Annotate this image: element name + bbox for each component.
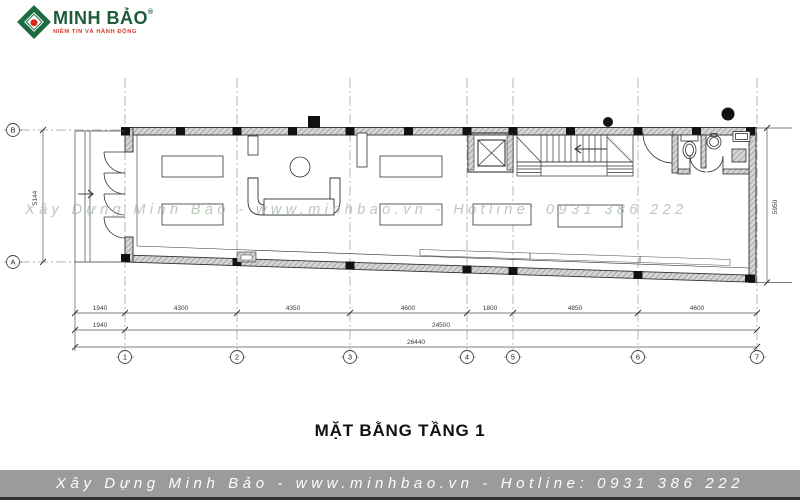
svg-text:7: 7 (755, 353, 759, 362)
svg-text:B: B (10, 126, 15, 135)
floor-plan-drawing: 1940 4300 4350 4600 1800 4850 4600 1940 … (0, 0, 800, 470)
svg-text:4: 4 (465, 353, 469, 362)
svg-text:3: 3 (348, 353, 352, 362)
dim-label-left: 5144 (32, 190, 39, 205)
utility-pole-icon (603, 117, 613, 127)
entrance-ramp (75, 131, 125, 262)
dim-label: 4600 (690, 305, 705, 312)
signage-block (308, 116, 320, 128)
svg-text:5: 5 (511, 353, 515, 362)
dim-label: 1940 (93, 305, 108, 312)
sofa-set (248, 178, 340, 215)
dim-label: 1940 (93, 322, 108, 329)
footer-bar: Xây Dựng Minh Bảo - www.minhbao.vn - Hot… (0, 470, 800, 497)
dim-label: 24500 (432, 322, 450, 329)
staircase (517, 135, 633, 176)
page: MINH BẢO® NIỀM TIN VÀ HÀNH ĐỘNG (0, 0, 800, 500)
dim-label: 26440 (407, 339, 425, 346)
dim-label: 4350 (286, 305, 301, 312)
sheet-title: MẶT BẰNG TẦNG 1 (0, 421, 800, 441)
dim-label: 1800 (483, 305, 498, 312)
dim-label: 4300 (174, 305, 189, 312)
dim-label-right: 5950 (772, 199, 779, 214)
utility-pole-icon (722, 108, 735, 121)
dim-label: 4850 (568, 305, 583, 312)
svg-text:1: 1 (123, 353, 127, 362)
rear-door (643, 131, 673, 163)
toilet-tank (681, 135, 698, 141)
dim-label: 4600 (401, 305, 416, 312)
entrance-folding-doors (104, 152, 125, 238)
footer-text: Xây Dựng Minh Bảo - www.minhbao.vn - Hot… (56, 475, 744, 492)
svg-text:6: 6 (636, 353, 640, 362)
svg-text:A: A (10, 258, 15, 267)
svg-text:2: 2 (235, 353, 239, 362)
elevator (468, 133, 513, 172)
bathroom (672, 132, 750, 175)
